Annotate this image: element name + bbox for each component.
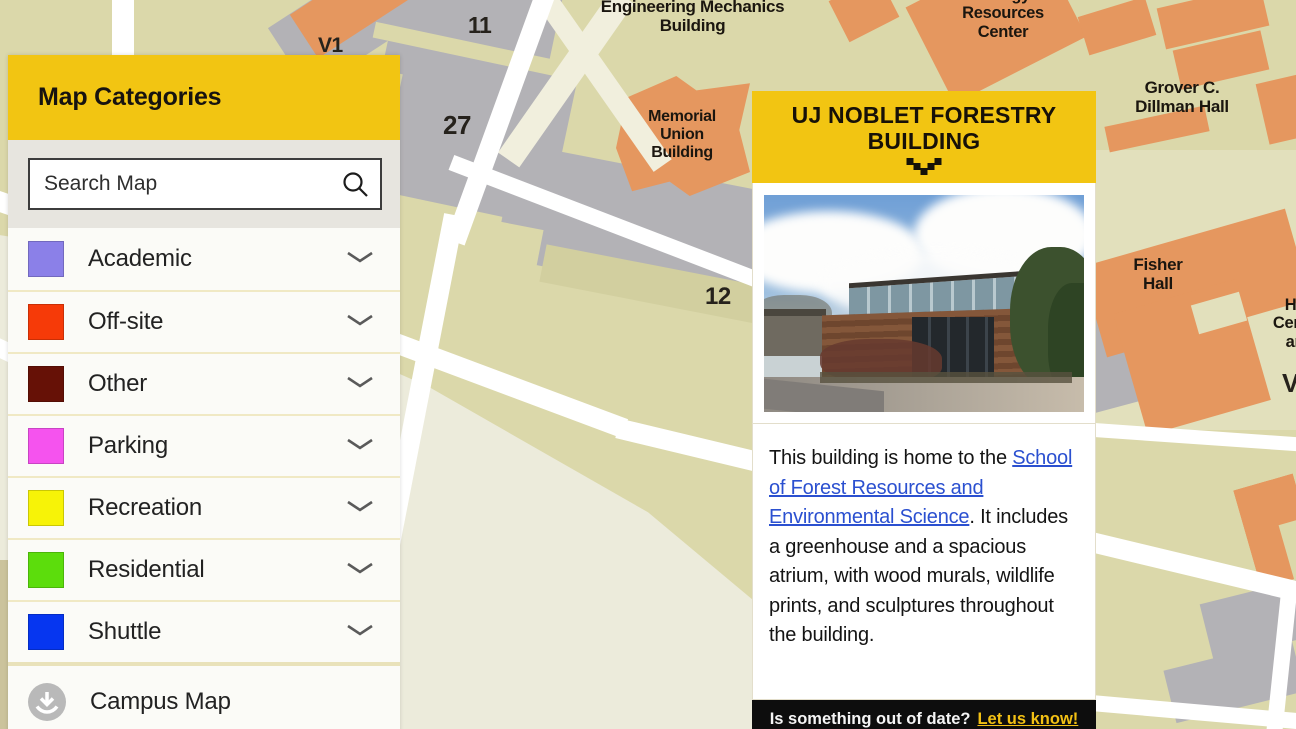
label-fisher-hall: Fisher Hall [1118, 255, 1198, 293]
chevron-down-icon[interactable] [346, 436, 374, 457]
popup-description: This building is home to the School of F… [752, 424, 1096, 700]
label-grover-dillman: Grover C. Dillman Hall [1118, 78, 1246, 116]
popup-footer: Is something out of date? Let us know! [752, 700, 1096, 729]
category-label: Shuttle [88, 618, 346, 646]
building-photo [764, 195, 1084, 412]
popup-header: UJ NOBLET FORESTRY BUILDING [752, 91, 1096, 183]
chevron-down-icon[interactable] [346, 374, 374, 395]
category-row-residential[interactable]: Residential [8, 538, 400, 600]
category-swatch [28, 304, 64, 340]
popup-title: UJ NOBLET FORESTRY BUILDING [762, 102, 1086, 154]
campus-map-label: Campus Map [90, 688, 380, 716]
category-row-offsite[interactable]: Off-site [8, 290, 400, 352]
category-row-academic[interactable]: Academic [8, 228, 400, 290]
category-swatch [28, 428, 64, 464]
category-row-recreation[interactable]: Recreation [8, 476, 400, 538]
search-icon[interactable] [340, 169, 370, 199]
category-swatch [28, 614, 64, 650]
label-engineering-mechanics: Engineering Mechanics Building [575, 0, 810, 35]
building-dillman-4[interactable] [1256, 73, 1296, 144]
search-box [28, 158, 382, 210]
building-photo-card [752, 183, 1096, 424]
description-text: This building is home to the [769, 447, 1012, 469]
chevron-down-icon[interactable] [346, 249, 374, 270]
chevron-down-icon[interactable] [346, 622, 374, 643]
category-label: Academic [88, 245, 346, 273]
photo-left-building [764, 309, 826, 356]
road [112, 0, 134, 58]
category-label: Off-site [88, 308, 346, 336]
category-label: Parking [88, 432, 346, 460]
label-memorial-union: Memorial Union Building [639, 108, 725, 162]
building-fragment-top[interactable] [829, 0, 900, 42]
category-row-parking[interactable]: Parking [8, 414, 400, 476]
photo-shrub-strip [820, 372, 1072, 383]
category-label: Recreation [88, 494, 346, 522]
label-v-right: V [1282, 368, 1296, 399]
campus-map-download[interactable]: Campus Map [8, 662, 400, 729]
search-section [8, 140, 400, 228]
category-label: Other [88, 370, 346, 398]
category-row-other[interactable]: Other [8, 352, 400, 414]
download-icon [28, 683, 66, 721]
category-swatch [28, 552, 64, 588]
campus-map-app: Engineering Mechanics Building Energy Re… [0, 0, 1296, 729]
sidebar-title: Map Categories [38, 83, 221, 112]
category-swatch [28, 366, 64, 402]
label-lot-11: 11 [468, 12, 491, 39]
label-lot-27: 27 [443, 110, 471, 141]
label-edge-fragment: Ha Cente an [1240, 296, 1296, 351]
chevron-down-icon[interactable] [346, 312, 374, 333]
map-categories-panel: Map Categories Academic Off-site Other [8, 55, 400, 729]
category-swatch [28, 241, 64, 277]
building-dillman-1[interactable] [1078, 0, 1157, 55]
category-swatch [28, 490, 64, 526]
sidebar-header: Map Categories [8, 55, 400, 140]
chevron-down-icon[interactable] [346, 498, 374, 519]
category-label: Residential [88, 556, 346, 584]
building-popup: UJ NOBLET FORESTRY BUILDING [752, 91, 1096, 729]
footer-question: Is something out of date? [770, 710, 971, 729]
label-energy-resources: Energy Resources Center [938, 0, 1068, 41]
map-ground-tan [0, 560, 8, 729]
collapse-chevron-icon[interactable] [921, 168, 928, 175]
let-us-know-link[interactable]: Let us know! [977, 710, 1078, 729]
chevron-down-icon[interactable] [346, 560, 374, 581]
label-lot-12: 12 [705, 283, 731, 311]
category-row-shuttle[interactable]: Shuttle [8, 600, 400, 662]
search-input[interactable] [42, 171, 340, 197]
